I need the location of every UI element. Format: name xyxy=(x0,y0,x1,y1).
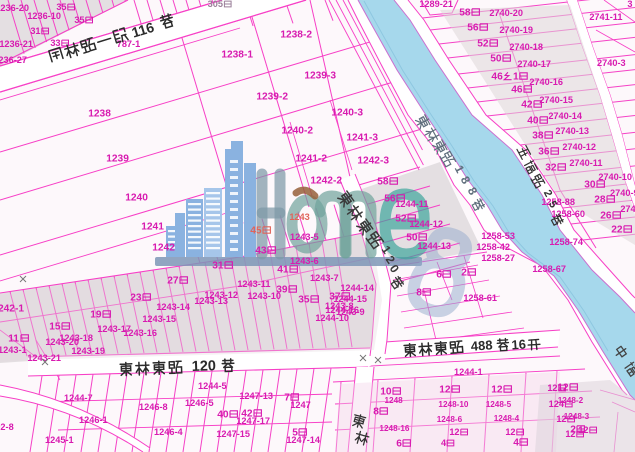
svg-text:5: 5 xyxy=(292,428,298,439)
svg-text:2740-20: 2740-20 xyxy=(489,8,523,18)
svg-text:46: 46 xyxy=(511,85,523,96)
svg-text:50: 50 xyxy=(406,233,418,244)
svg-text:23: 23 xyxy=(130,293,142,304)
svg-text:58: 58 xyxy=(459,8,471,19)
svg-text:1243-14: 1243-14 xyxy=(156,302,191,312)
svg-text:1244-12: 1244-12 xyxy=(409,219,443,229)
svg-text:45: 45 xyxy=(250,226,262,237)
svg-text:38: 38 xyxy=(532,131,544,142)
svg-text:6: 6 xyxy=(396,439,402,450)
svg-text:1236-21: 1236-21 xyxy=(0,39,33,49)
svg-text:40: 40 xyxy=(217,410,229,421)
svg-text:1240-2: 1240-2 xyxy=(281,126,313,137)
svg-text:16: 16 xyxy=(511,337,526,353)
svg-text:1246-4: 1246-4 xyxy=(154,427,183,437)
svg-text:2740-17: 2740-17 xyxy=(517,59,551,69)
svg-text:1246-8: 1246-8 xyxy=(139,402,168,412)
svg-text:27: 27 xyxy=(167,276,179,287)
svg-text:2740-18: 2740-18 xyxy=(509,42,543,52)
svg-text:1238-1: 1238-1 xyxy=(221,50,253,61)
svg-text:1244-5: 1244-5 xyxy=(198,381,227,391)
svg-text:1243-9: 1243-9 xyxy=(336,307,365,317)
svg-text:42: 42 xyxy=(241,409,253,420)
svg-text:1244-1: 1244-1 xyxy=(454,367,483,377)
svg-text:7: 7 xyxy=(284,393,290,404)
svg-text:1242-3: 1242-3 xyxy=(357,156,389,167)
svg-text:1236-10: 1236-10 xyxy=(27,11,61,21)
svg-text:1248-10: 1248-10 xyxy=(438,400,468,409)
svg-text:12: 12 xyxy=(565,429,575,439)
svg-text:1244-14: 1244-14 xyxy=(340,283,375,293)
svg-text:1246-1: 1246-1 xyxy=(79,415,108,425)
svg-text:02-8: 02-8 xyxy=(0,422,14,432)
svg-text:30: 30 xyxy=(584,180,596,191)
svg-text:36: 36 xyxy=(538,147,550,158)
svg-text:43: 43 xyxy=(255,246,267,257)
svg-text:1236-27: 1236-27 xyxy=(0,55,27,65)
svg-text:58: 58 xyxy=(377,177,389,188)
svg-text:1238: 1238 xyxy=(88,109,111,120)
svg-text:1258-61: 1258-61 xyxy=(463,293,497,303)
svg-text:2740-16: 2740-16 xyxy=(529,77,563,87)
svg-text:11: 11 xyxy=(8,334,19,345)
svg-text:1243-11: 1243-11 xyxy=(237,279,270,289)
svg-text:1239-2: 1239-2 xyxy=(256,92,288,103)
svg-text:22: 22 xyxy=(611,225,623,236)
svg-text:2740-10: 2740-10 xyxy=(598,172,632,182)
svg-text:1247-15: 1247-15 xyxy=(216,429,250,439)
svg-text:2740-13: 2740-13 xyxy=(555,126,589,136)
svg-text:1244-11: 1244-11 xyxy=(395,199,428,209)
svg-text:787-1: 787-1 xyxy=(117,39,141,49)
svg-text:2740-12: 2740-12 xyxy=(562,142,596,152)
svg-text:1243-15: 1243-15 xyxy=(142,314,176,324)
svg-text:6: 6 xyxy=(436,270,442,281)
svg-text:1240-3: 1240-3 xyxy=(331,108,363,119)
svg-text:3: 3 xyxy=(627,0,632,9)
svg-text:12: 12 xyxy=(449,427,459,437)
svg-text:12: 12 xyxy=(556,414,566,424)
svg-text:46: 46 xyxy=(491,72,503,83)
svg-text:1248-6: 1248-6 xyxy=(437,415,463,424)
svg-text:1242-2: 1242-2 xyxy=(310,176,342,187)
svg-text:1247-13: 1247-13 xyxy=(239,391,273,401)
svg-text:40: 40 xyxy=(527,116,539,127)
svg-text:8: 8 xyxy=(416,288,422,299)
svg-text:1243-6: 1243-6 xyxy=(290,256,319,266)
svg-text:35: 35 xyxy=(56,2,66,12)
svg-text:56: 56 xyxy=(384,194,396,205)
svg-text:1243-7: 1243-7 xyxy=(310,273,339,283)
svg-text:2740-9: 2740-9 xyxy=(610,188,635,198)
svg-text:1242-1: 1242-1 xyxy=(0,304,24,315)
svg-text:1238-2: 1238-2 xyxy=(280,30,312,41)
svg-text:4: 4 xyxy=(513,438,519,449)
svg-text:1248-5: 1248-5 xyxy=(486,400,512,409)
svg-text:52: 52 xyxy=(477,39,489,50)
svg-text:1246-5: 1246-5 xyxy=(185,398,214,408)
svg-text:2740-15: 2740-15 xyxy=(539,95,573,105)
svg-text:56: 56 xyxy=(467,23,479,34)
svg-text:1241-3: 1241-3 xyxy=(346,133,378,144)
svg-text:1236-20: 1236-20 xyxy=(0,3,29,13)
svg-text:1241-2: 1241-2 xyxy=(295,154,327,165)
svg-text:2740: 2740 xyxy=(620,204,635,214)
svg-text:31: 31 xyxy=(212,261,224,272)
svg-text:1243-13: 1243-13 xyxy=(194,296,228,306)
svg-text:50: 50 xyxy=(490,54,502,65)
svg-text:1243-16: 1243-16 xyxy=(123,328,157,338)
svg-text:35: 35 xyxy=(74,15,84,25)
svg-text:2740-19: 2740-19 xyxy=(499,25,533,35)
svg-text:1245-1: 1245-1 xyxy=(45,435,74,445)
svg-text:1258-53: 1258-53 xyxy=(481,231,515,241)
svg-text:1258-74: 1258-74 xyxy=(549,237,584,247)
svg-text:1243: 1243 xyxy=(289,212,309,222)
svg-text:1239: 1239 xyxy=(106,154,129,165)
svg-text:1241: 1241 xyxy=(141,222,164,233)
svg-text:12: 12 xyxy=(491,385,503,396)
svg-text:1248: 1248 xyxy=(385,396,404,405)
svg-text:19: 19 xyxy=(90,310,102,321)
svg-text:1247: 1247 xyxy=(290,400,310,410)
svg-text:1248-4: 1248-4 xyxy=(494,414,520,423)
svg-text:2740-3: 2740-3 xyxy=(597,58,626,68)
svg-text:1258-67: 1258-67 xyxy=(532,264,566,274)
svg-text:15: 15 xyxy=(49,322,61,333)
svg-text:2740-11: 2740-11 xyxy=(569,158,602,168)
svg-text:1289-21: 1289-21 xyxy=(419,0,453,9)
svg-text:33: 33 xyxy=(50,38,60,48)
svg-text:124: 124 xyxy=(549,399,565,409)
svg-text:28: 28 xyxy=(594,195,606,206)
svg-text:120: 120 xyxy=(191,358,216,375)
svg-text:1244-7: 1244-7 xyxy=(64,393,93,403)
svg-text:1: 1 xyxy=(513,72,519,83)
svg-text:42: 42 xyxy=(521,100,533,111)
svg-text:2: 2 xyxy=(461,268,467,279)
svg-text:26: 26 xyxy=(600,211,612,222)
svg-text:1244-13: 1244-13 xyxy=(417,241,451,251)
svg-text:1243-10: 1243-10 xyxy=(247,291,281,301)
svg-text:52: 52 xyxy=(395,214,407,225)
svg-text:1242: 1242 xyxy=(152,243,175,254)
svg-text:32: 32 xyxy=(545,163,557,174)
svg-text:305: 305 xyxy=(208,0,223,9)
svg-text:1248-16: 1248-16 xyxy=(379,424,409,433)
svg-text:41: 41 xyxy=(277,265,289,276)
svg-text:488: 488 xyxy=(470,337,493,353)
svg-text:1243-19: 1243-19 xyxy=(71,346,105,356)
svg-text:8: 8 xyxy=(373,407,379,418)
svg-text:31: 31 xyxy=(30,26,40,36)
svg-text:12: 12 xyxy=(439,385,451,396)
svg-text:4: 4 xyxy=(441,438,447,448)
svg-text:1243-1: 1243-1 xyxy=(0,345,27,355)
svg-text:12: 12 xyxy=(547,383,557,393)
svg-text:2741-11: 2741-11 xyxy=(589,12,622,22)
svg-text:1258-27: 1258-27 xyxy=(481,253,515,263)
svg-text:35: 35 xyxy=(298,295,310,306)
svg-text:1239-3: 1239-3 xyxy=(304,71,336,82)
svg-text:1258-42: 1258-42 xyxy=(476,242,510,252)
svg-text:1243-5: 1243-5 xyxy=(290,232,319,242)
svg-text:1240: 1240 xyxy=(125,193,148,204)
svg-text:12: 12 xyxy=(505,427,515,437)
svg-text:2740-14: 2740-14 xyxy=(548,111,583,121)
